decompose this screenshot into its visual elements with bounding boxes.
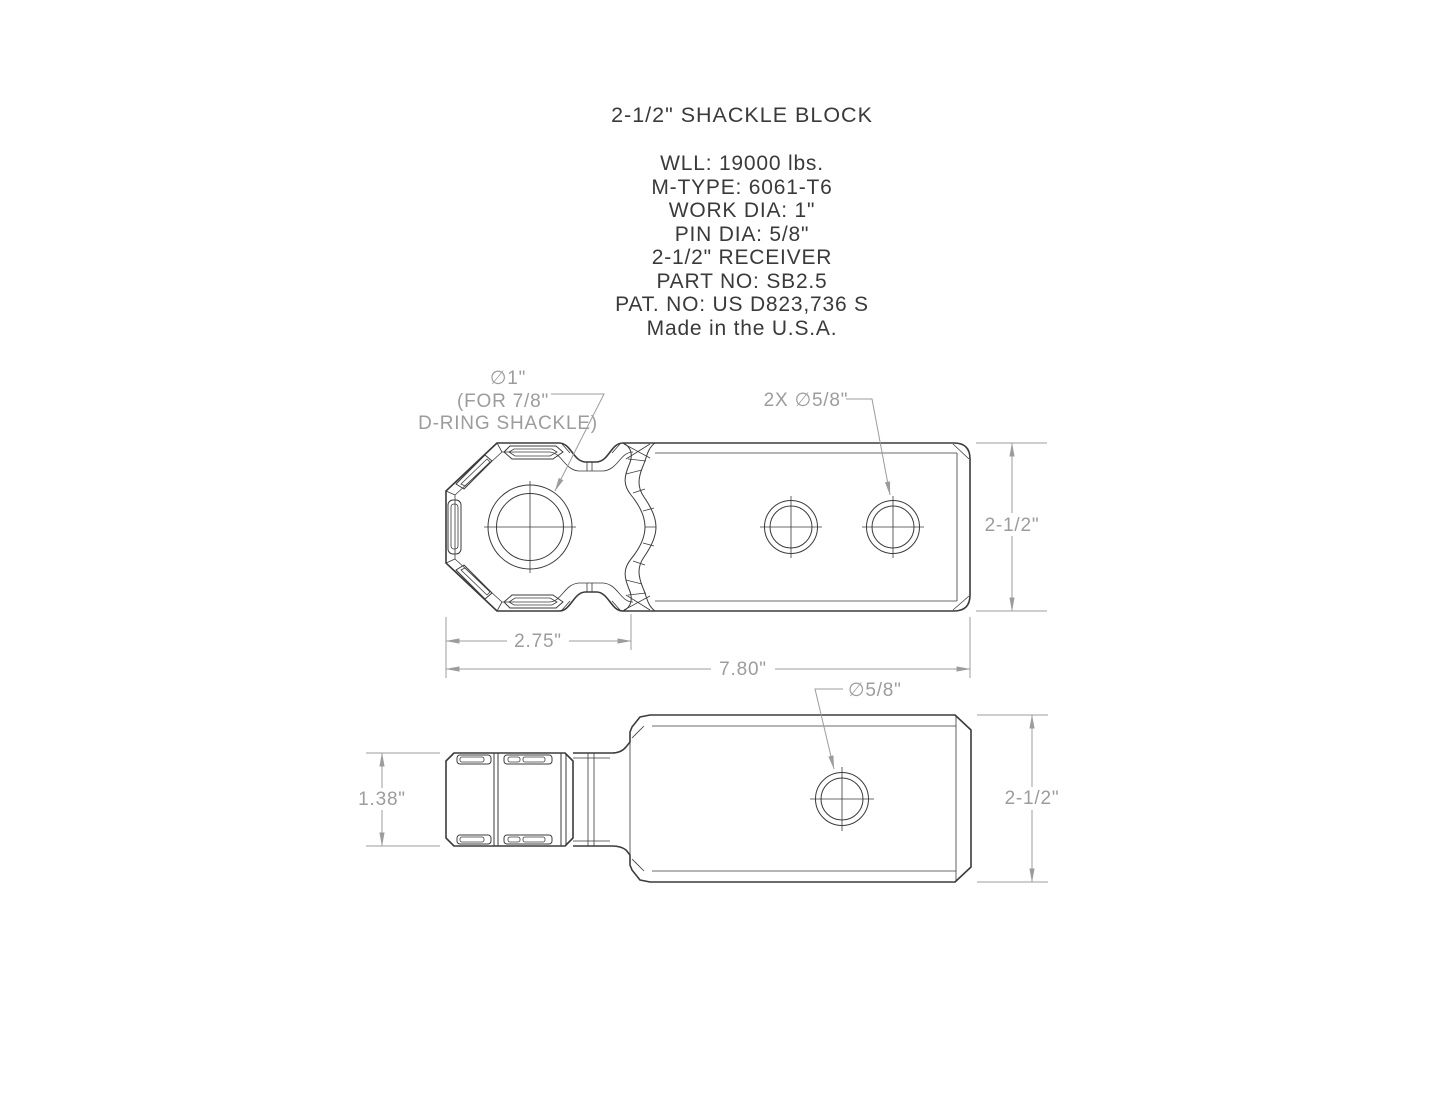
side-view-annotations: ∅5/8" [815,680,902,769]
dim-top-height-text: 2-1/2" [985,515,1040,536]
side-pin-hole [810,767,874,831]
neck-band-rungs [626,459,656,595]
label-shackle-hole-note2: D-RING SHACKLE) [418,413,598,434]
label-shackle-hole-dia: ∅1" [490,368,526,389]
head-slot-upper-left [456,455,492,489]
drawing-sheet: 2-1/2" SHACKLE BLOCK WLL: 19000 lbs. M-T… [0,0,1440,1113]
pin-hole-right [862,496,924,558]
head-slot-bottom [504,595,563,608]
head-slot-lower-left [456,565,492,599]
technical-drawing: ∅1" (FOR 7/8" D-RING SHACKLE) 2X ∅5/8" 2… [0,0,1440,1113]
top-view: ∅1" (FOR 7/8" D-RING SHACKLE) 2X ∅5/8" 2… [418,368,1047,680]
side-body-outline [573,715,971,882]
dim-top-height: 2-1/2" [976,443,1047,611]
shackle-hole-centerlines [484,481,576,573]
dim-side-height-text: 2-1/2" [1005,788,1060,809]
side-pin-hole-leader [815,689,843,769]
label-shackle-hole-note1: (FOR 7/8" [457,391,549,412]
dim-head-length: 2.75" [446,614,631,678]
side-head-slots [457,755,552,844]
dim-side-height: 2-1/2" [977,715,1063,882]
side-view: ∅5/8" 1.38" 2-1/2" [352,680,1063,882]
pin-holes-leader [846,399,890,495]
pin-hole-left [760,496,822,558]
label-side-pin-hole: ∅5/8" [848,680,902,701]
dim-overall-length-text: 7.80" [719,659,767,680]
dim-shackle-width-text: 1.38" [358,789,406,810]
top-view-annotations: ∅1" (FOR 7/8" D-RING SHACKLE) 2X ∅5/8" [418,368,890,495]
dim-head-length-text: 2.75" [514,631,562,652]
shackle-hole [484,481,576,573]
side-head-outline [446,753,573,846]
side-head-division-lines [494,753,566,846]
dim-shackle-width: 1.38" [352,753,440,846]
label-pin-holes: 2X ∅5/8" [764,390,849,411]
head-slot-left [448,500,461,554]
head-slot-top [504,446,563,459]
